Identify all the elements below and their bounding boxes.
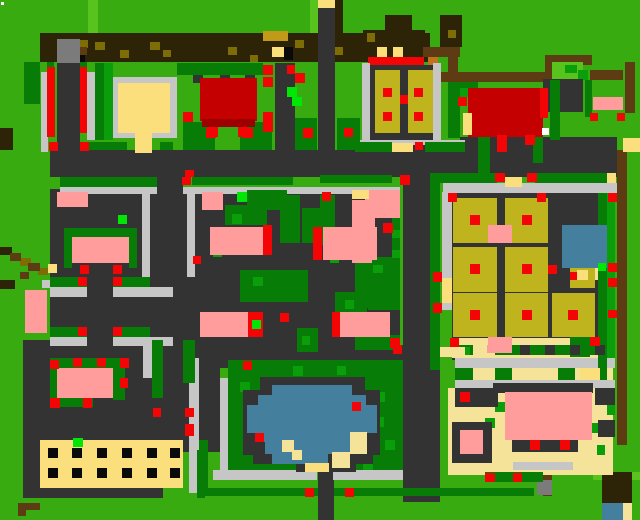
red-dot [548, 265, 557, 274]
red-dot [280, 313, 289, 322]
window [170, 448, 180, 458]
red-dot [522, 310, 532, 320]
road [403, 350, 440, 502]
wall [50, 337, 87, 346]
red-dot [530, 440, 540, 450]
red-dot [83, 398, 92, 408]
building-red-base [202, 119, 255, 127]
red-dot [287, 65, 295, 74]
red-dot [344, 128, 353, 137]
red-dot [80, 265, 89, 274]
hedge [455, 368, 473, 380]
beach-sand [440, 347, 465, 357]
hedge-light [302, 336, 310, 345]
red-dot [295, 73, 305, 83]
window [170, 468, 180, 478]
hedge [355, 142, 392, 152]
band-speckle [95, 42, 105, 50]
wall [455, 358, 615, 368]
plaza-dark-patch [595, 345, 605, 355]
plaza-dark-patch [570, 345, 580, 355]
gate-step [57, 39, 80, 63]
yellow-tile [392, 143, 413, 152]
road [543, 79, 583, 112]
red-dot [470, 310, 480, 320]
hedge [430, 173, 497, 183]
red-dot [49, 142, 58, 151]
red-dot [522, 215, 532, 225]
hedge [95, 63, 104, 140]
red-dot [183, 112, 193, 122]
red-dot [153, 408, 161, 417]
wall-lower [513, 462, 573, 470]
fence [440, 72, 552, 82]
plaza-pink [505, 392, 592, 440]
red-dot [608, 310, 617, 318]
building-pink [340, 312, 390, 337]
fence [20, 272, 29, 279]
bright-dot [598, 263, 606, 271]
white-pixel [1, 2, 4, 5]
red-dot [238, 127, 248, 137]
building-pink [72, 237, 129, 263]
road [57, 62, 80, 152]
hedge-light [385, 440, 395, 450]
red-strip [313, 227, 322, 260]
window [48, 448, 58, 458]
hedge [192, 177, 293, 185]
yellow-tile [318, 0, 335, 8]
red-dot [255, 433, 264, 442]
road [318, 470, 334, 520]
fence [10, 253, 21, 261]
fence [625, 62, 635, 113]
wall [443, 183, 617, 193]
red-dot [433, 303, 442, 313]
beach-sand [332, 452, 350, 468]
red-dot [113, 327, 122, 336]
hedge-light [460, 88, 468, 97]
grass-accent [632, 472, 640, 480]
hedge [392, 217, 400, 277]
beach-sand [623, 503, 632, 520]
red-dot [303, 128, 313, 138]
red-dot [383, 112, 392, 121]
fence [590, 70, 623, 80]
gold-roof [263, 31, 288, 41]
building-pink [488, 225, 512, 243]
beach-sand [292, 450, 302, 460]
building-pink [57, 192, 88, 207]
building-cream [118, 83, 170, 133]
hedge [64, 228, 137, 237]
wall [50, 287, 87, 297]
band-speckle [120, 50, 129, 58]
band-speckle [250, 55, 258, 62]
fence [617, 150, 627, 445]
hedge [334, 488, 534, 496]
band-door [284, 47, 293, 60]
road [275, 63, 295, 152]
red-dot [322, 192, 331, 201]
red-dot [50, 360, 59, 369]
red-dot [458, 97, 467, 106]
tree-foliage [24, 62, 40, 104]
hedge [535, 173, 607, 183]
hedge [280, 195, 300, 243]
yellow-tile [305, 463, 329, 472]
yellow-tile [577, 270, 588, 280]
hedge [177, 63, 263, 75]
red-dot [590, 337, 600, 346]
red-dot [243, 361, 252, 370]
fence [28, 263, 40, 271]
red-strip [540, 88, 548, 118]
red-dot [97, 358, 106, 367]
red-dot [305, 488, 314, 497]
wall [143, 340, 152, 378]
red-strip [332, 312, 340, 337]
band-speckle [150, 42, 160, 50]
fence [18, 503, 26, 516]
window [147, 468, 157, 478]
band-speckle [295, 40, 304, 48]
hedge [160, 142, 173, 150]
beach-sand [350, 432, 367, 454]
yellow-tile [442, 278, 452, 303]
yellow-tile [580, 368, 600, 380]
hedge-light [232, 214, 242, 224]
red-dot [537, 193, 546, 202]
hedge [240, 270, 308, 302]
yellow-tile [48, 264, 57, 273]
building-red [468, 88, 543, 137]
hedge [558, 368, 575, 380]
hedge [425, 142, 465, 152]
red-dot [383, 88, 392, 97]
building-pink [593, 97, 623, 110]
hedge-light [104, 63, 113, 140]
dirt-band [0, 280, 15, 289]
building-pink [323, 227, 377, 260]
hedge-light [337, 366, 346, 375]
red-dot [400, 95, 408, 104]
wall [433, 63, 441, 148]
plaza-dark-patch [598, 420, 615, 437]
hedge [448, 82, 460, 138]
hedge [60, 177, 157, 187]
window [147, 448, 157, 458]
dirt-band [602, 472, 632, 503]
sand-terrace [578, 440, 592, 463]
red-dot [560, 440, 570, 450]
window [97, 468, 107, 478]
red-dot [525, 135, 535, 145]
red-dot [485, 473, 495, 482]
white-pixel [542, 128, 549, 135]
red-dot [470, 264, 480, 274]
hedge [152, 340, 163, 398]
window [48, 468, 58, 478]
bright-dot [252, 320, 261, 329]
plaza-dark-patch [595, 388, 615, 405]
red-dot [113, 277, 122, 286]
red-strip [80, 67, 87, 133]
red-dot [495, 173, 505, 182]
hedge [550, 80, 560, 140]
wall [187, 194, 195, 277]
wall [87, 72, 95, 140]
building-pink [487, 345, 510, 353]
band-speckle [448, 30, 456, 38]
plaza-pink [460, 430, 483, 454]
wall [362, 63, 370, 148]
band-red-bar [368, 57, 424, 65]
band-window [393, 47, 403, 57]
red-dot [617, 113, 625, 121]
building-pink [210, 227, 263, 255]
building-pink [57, 368, 113, 398]
hedge [320, 175, 392, 183]
red-dot [185, 170, 194, 177]
band-speckle [163, 50, 171, 57]
red-dot [383, 223, 393, 233]
window [122, 468, 132, 478]
hedge-light [392, 250, 400, 258]
red-dot [448, 193, 457, 202]
hedge-light [607, 193, 615, 358]
hedge [200, 488, 318, 496]
building-cream [40, 440, 183, 488]
red-dot [113, 265, 122, 274]
red-dot [414, 112, 423, 121]
band-speckle [228, 47, 237, 55]
red-dot [527, 173, 537, 182]
red-dot [345, 488, 354, 497]
gate-step [537, 480, 552, 495]
building-olive [375, 70, 400, 133]
red-dot [608, 193, 617, 202]
band-speckle [367, 33, 375, 42]
red-dot [80, 142, 89, 151]
red-dot [120, 358, 129, 368]
hedge-light [392, 230, 400, 238]
red-strip [263, 225, 272, 255]
grass-accent [88, 0, 98, 36]
red-dot [193, 256, 201, 264]
red-dot [470, 215, 480, 225]
building-pink [25, 290, 47, 333]
red-dot [414, 88, 423, 97]
red-dot [433, 272, 442, 282]
hedge [88, 142, 127, 150]
red-dot [460, 392, 470, 402]
water [562, 225, 607, 268]
plaza-dark-patch [545, 345, 555, 355]
wall [113, 287, 173, 297]
hedge-light [607, 405, 615, 415]
window [72, 468, 82, 478]
hedge [495, 368, 512, 380]
red-dot [590, 113, 598, 121]
town-map-canvas[interactable] [0, 0, 640, 520]
red-dot [608, 278, 617, 287]
hedge [585, 80, 592, 117]
red-strip [497, 135, 507, 152]
red-dot [182, 177, 191, 185]
hedge [183, 340, 195, 383]
red-dot [120, 378, 128, 388]
red-dot [263, 65, 273, 75]
red-dot [415, 142, 423, 150]
red-dot [513, 473, 522, 482]
bright-dot [73, 438, 83, 447]
red-dot [263, 122, 273, 132]
wall [142, 180, 150, 290]
red-dot [263, 77, 273, 87]
red-dot [570, 310, 577, 320]
red-dot [450, 338, 459, 347]
dirt-band [0, 128, 13, 150]
fence-bush-shade [565, 65, 577, 73]
hedge [129, 228, 137, 268]
plaza-dark-patch [520, 345, 530, 355]
red-dot [185, 424, 194, 436]
red-dot [78, 327, 87, 336]
hedge-light [597, 445, 605, 455]
window [72, 448, 82, 458]
red-dot [73, 358, 82, 367]
building-cream [135, 133, 152, 153]
red-strip [47, 67, 55, 137]
red-dot [522, 264, 532, 274]
red-dot [570, 272, 577, 280]
band-window [377, 47, 387, 57]
yellow-tile [607, 173, 616, 183]
window [97, 448, 107, 458]
red-dot [263, 112, 273, 122]
building-pink [202, 192, 223, 210]
building-red [200, 78, 257, 121]
red-dot [208, 127, 218, 137]
bright-dot [118, 215, 127, 224]
red-dot [50, 398, 60, 408]
window [122, 448, 132, 458]
water [602, 503, 623, 520]
red-dot [185, 408, 194, 417]
yellow-tile [352, 190, 369, 199]
yellow-tile [505, 177, 522, 187]
building-pink [200, 312, 248, 337]
yellow-tile [463, 113, 472, 135]
red-dot [352, 402, 361, 411]
red-dot [393, 345, 402, 354]
hedge-light [373, 265, 383, 273]
hedge-light [345, 300, 354, 309]
bright-dot [237, 192, 247, 202]
red-dot [608, 263, 617, 272]
red-dot [400, 175, 410, 185]
road [318, 8, 335, 152]
hedge-light [293, 366, 303, 376]
hedge-light [253, 277, 263, 286]
red-dot [78, 277, 87, 286]
yellow-tile [623, 138, 640, 152]
bright-dot [292, 97, 302, 106]
building-olive [408, 70, 433, 133]
band-speckle [335, 47, 343, 55]
grass-accent [310, 0, 318, 33]
bright-dot [287, 87, 297, 97]
road [403, 175, 430, 355]
building-pink [365, 190, 400, 218]
